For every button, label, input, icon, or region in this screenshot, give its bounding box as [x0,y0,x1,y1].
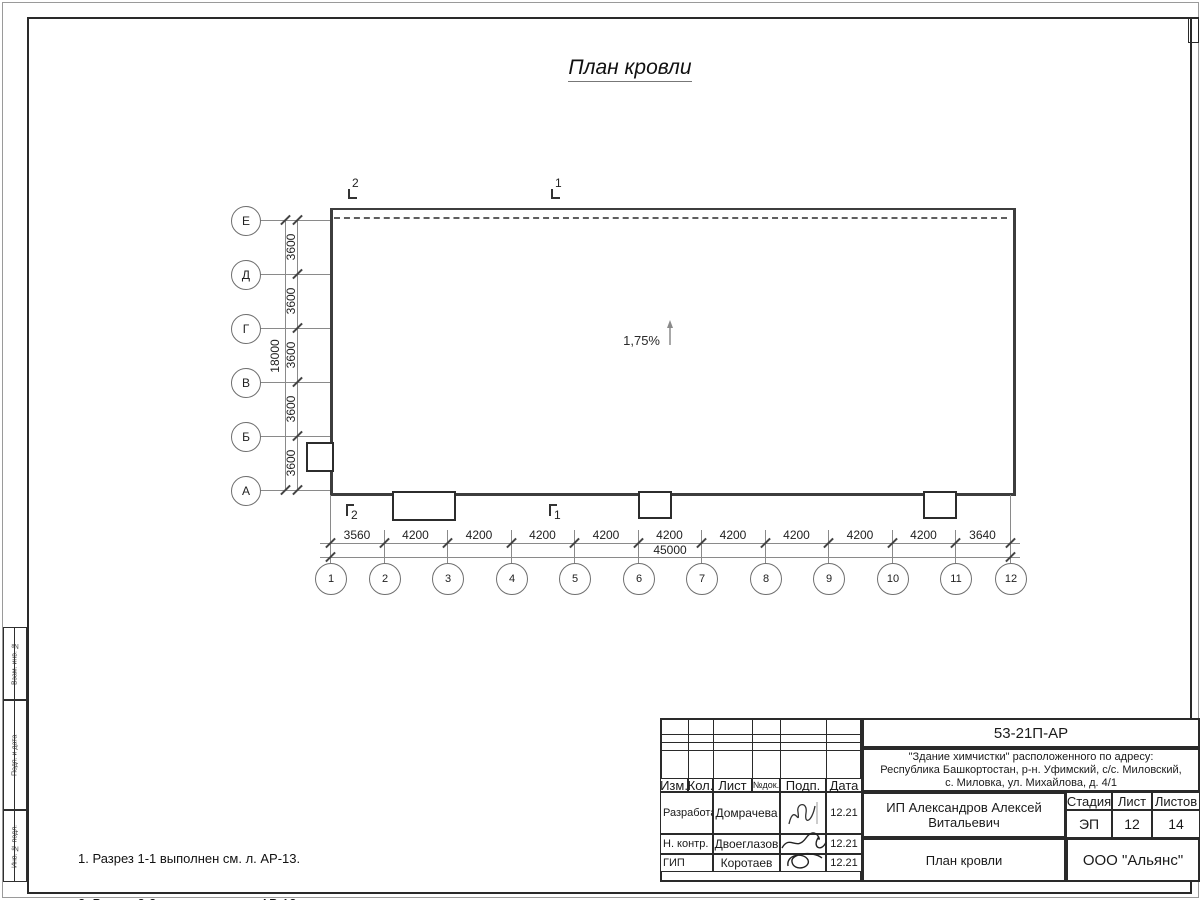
axis-bubble-row: Е [231,206,261,236]
tb-line [826,718,827,778]
axis-bubble-col: 8 [750,563,782,595]
building-outline [330,208,1016,496]
tb-sheet-label: Лист [1112,792,1152,810]
tb-object-line: "Здание химчистки" расположенного по адр… [909,751,1154,764]
wall-protrusion-bottom-2 [638,491,672,519]
dim-label-row: 3600 [284,389,298,429]
dim-total-cols: 45000 [640,543,700,557]
tb-role: ГИП [660,854,713,872]
tb-line [713,718,714,778]
section-mark-number: 2 [352,176,359,190]
tb-header-podp: Подп. [780,778,826,792]
section-mark-line [551,197,560,199]
side-strip-label: Взам. инв. № [4,628,26,699]
tb-object-address: "Здание химчистки" расположенного по адр… [862,748,1200,792]
tb-object-line: Республика Башкортостан, р-н. Уфимский, … [880,764,1181,777]
axis-bubble-col: 2 [369,563,401,595]
axis-bubble-row: А [231,476,261,506]
page-title-text: План кровли [568,56,691,82]
tb-name: Домрачева [713,792,780,834]
tb-header-doc: №док. [752,778,780,792]
tb-stage-value: ЭП [1066,810,1112,838]
axis-line-col [574,530,575,563]
dim-label-col: 3560 [327,528,387,542]
tb-line [660,750,862,751]
dim-label-row: 3600 [284,335,298,375]
tb-header-list: Лист [713,778,752,792]
axis-bubble-col: 9 [813,563,845,595]
dim-label-col: 4200 [830,528,890,542]
tb-sheet-value: 12 [1112,810,1152,838]
tb-doc-number: 53-21П-АР [862,718,1200,748]
axis-bubble-row: В [231,368,261,398]
roof-dashed-line [334,217,1007,219]
dim-label-col: 4200 [894,528,954,542]
dim-label-row: 3600 [284,443,298,483]
axis-line-col [828,530,829,563]
slope-label: 1,75% [610,333,660,348]
tb-header-kol: Кол. [688,778,713,792]
section-mark-line [549,504,557,506]
dim-label-col: 4200 [703,528,763,542]
tb-header-izm: Изм. [660,778,688,792]
signature-icon [781,794,827,834]
section-mark-number: 2 [351,508,358,522]
tb-date: 12.21 [826,792,862,834]
axis-bubble-col: 6 [623,563,655,595]
dim-label-row: 3600 [284,227,298,267]
dim-line-cols-total [320,557,1020,558]
side-strip-label: Подп. и дата [4,701,26,809]
section-mark-line [346,504,354,506]
tb-sheet-title: План кровли [862,838,1066,882]
frame-corner-box [1188,17,1199,43]
dim-label-col: 4200 [767,528,827,542]
tb-stage-label: Стадия [1066,792,1112,810]
side-strip-cell: Подп. и дата [3,700,27,810]
side-strip-label: Инв. № подл. [4,811,26,881]
dim-label-row: 3600 [284,281,298,321]
dim-label-col: 4200 [576,528,636,542]
tb-line [752,718,753,778]
tb-name: Двоеглазов [713,834,780,854]
note-line: 1. Разрез 1-1 выполнен см. л. АР-13. [78,851,300,866]
tb-role: Н. контр. [660,834,713,854]
tb-object-line: с. Миловка, ул. Михайлова, д. 4/1 [945,777,1117,790]
note-line: 2. Разрез 2-2 выполнен см. л. АР-13. [78,896,300,900]
axis-bubble-row: Г [231,314,261,344]
tb-line [688,718,689,778]
tb-line [660,742,862,743]
tb-client: ИП Александров Алексей Витальевич [862,792,1066,838]
tb-date: 12.21 [826,854,862,872]
page-title: План кровли [490,56,770,80]
section-mark-number: 1 [554,508,561,522]
wall-protrusion-bottom-1 [392,491,456,521]
section-mark-line [348,197,357,199]
signature-icon [778,832,830,874]
drawing-sheet: Взам. инв. № Подп. и дата Инв. № подл. П… [0,0,1200,900]
wall-protrusion-left [306,442,334,472]
tb-line [780,718,781,778]
axis-bubble-col: 3 [432,563,464,595]
axis-bubble-col: 11 [940,563,972,595]
tb-line [660,734,862,735]
tb-company: ООО "Альянс" [1066,838,1200,882]
axis-bubble-col: 5 [559,563,591,595]
section-mark-number: 1 [555,176,562,190]
axis-bubble-row: Б [231,422,261,452]
side-strip-divider [14,627,15,882]
drawing-notes: 1. Разрез 1-1 выполнен см. л. АР-13. 2. … [78,821,300,900]
tb-header-data: Дата [826,778,862,792]
axis-bubble-col: 7 [686,563,718,595]
dim-label-col: 4200 [386,528,446,542]
tb-name: Коротаев [713,854,780,872]
tb-role: Разработал [660,792,713,834]
wall-protrusion-bottom-3 [923,491,957,519]
dim-label-col: 4200 [449,528,509,542]
title-block: Изм. Кол. Лист №док. Подп. Дата Разработ… [660,718,1200,882]
tb-sheets-value: 14 [1152,810,1200,838]
axis-bubble-row: Д [231,260,261,290]
tb-date: 12.21 [826,834,862,854]
axis-bubble-col: 4 [496,563,528,595]
dim-label-col: 3640 [953,528,1013,542]
axis-line-col [701,530,702,563]
dim-total-rows: 18000 [268,328,282,384]
dim-label-col: 4200 [513,528,573,542]
side-strip-cell: Взам. инв. № [3,627,27,700]
axis-line-col [447,530,448,563]
dim-label-col: 4200 [640,528,700,542]
tb-sheets-label: Листов [1152,792,1200,810]
axis-bubble-col: 12 [995,563,1027,595]
axis-bubble-col: 1 [315,563,347,595]
side-strip-cell: Инв. № подл. [3,810,27,882]
slope-arrow-icon [663,318,677,348]
axis-bubble-col: 10 [877,563,909,595]
